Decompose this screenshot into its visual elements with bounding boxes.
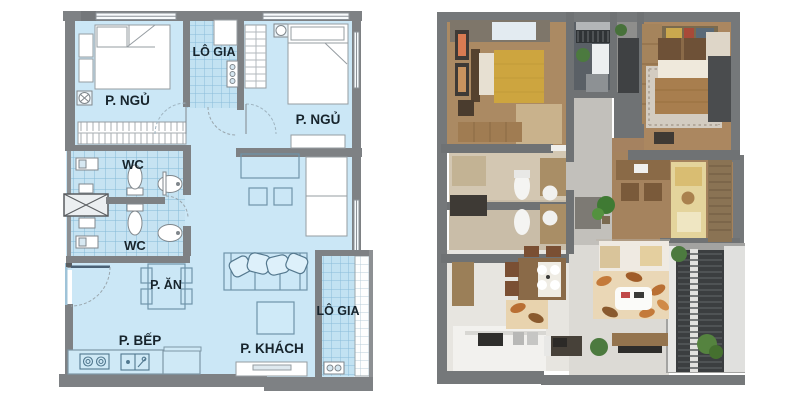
svg-text:P. NGỦ: P. NGỦ [105, 93, 150, 108]
svg-text:P. NGỦ: P. NGỦ [296, 112, 341, 127]
svg-text:P. ĂN: P. ĂN [150, 277, 182, 292]
svg-text:LÔ GIA: LÔ GIA [192, 44, 235, 59]
svg-text:LÔ GIA: LÔ GIA [316, 303, 359, 318]
svg-text:WC: WC [122, 157, 144, 172]
svg-text:P. BẾP: P. BẾP [119, 333, 162, 348]
svg-text:WC: WC [124, 238, 146, 253]
svg-text:P. KHÁCH: P. KHÁCH [240, 341, 304, 356]
